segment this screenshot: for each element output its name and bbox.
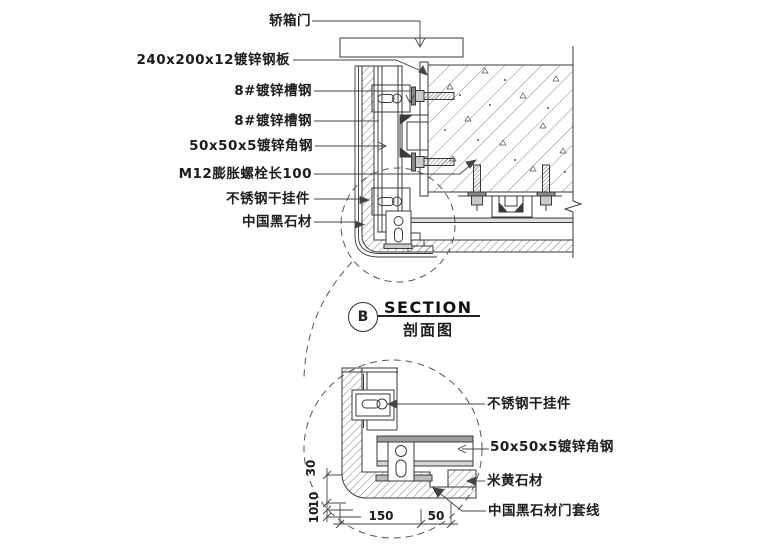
dim-50: 50 — [424, 509, 448, 523]
leader-anchor — [314, 197, 369, 204]
ceiling-stone-strip — [398, 233, 573, 252]
leader-elevator-door — [312, 21, 425, 47]
horizontal-channel-steel — [400, 115, 428, 157]
label-detail-angle-steel: 50x50x5镀锌角钢 — [490, 439, 614, 455]
dim-10-b: 10 — [307, 504, 321, 526]
detail-anchor-bracket-top — [352, 390, 394, 420]
label-doorframe-line: 中国黑石材门套线 — [488, 503, 600, 519]
label-steel-plate: 240x200x12镀锌钢板 — [136, 52, 290, 68]
leader-black-stone — [314, 221, 364, 228]
label-expansion-bolt: M12膨胀螺栓长100 — [179, 166, 312, 182]
cad-drawing-canvas: 轿箱门 240x200x12镀锌钢板 8#镀锌槽钢 8#镀锌槽钢 50x50x5… — [0, 0, 780, 551]
label-beige-stone: 米黄石材 — [487, 473, 543, 489]
steel-plate — [420, 62, 428, 196]
elevator-door-outline — [340, 38, 463, 57]
label-elevator-door: 轿箱门 — [269, 13, 311, 29]
leader-steel-plate — [293, 60, 427, 75]
break-symbol — [565, 197, 581, 212]
dim-30: 30 — [304, 457, 318, 479]
dim-150: 150 — [366, 509, 396, 523]
label-black-stone: 中国黑石材 — [242, 214, 312, 230]
ceiling-angle-rail — [390, 218, 573, 223]
corner-anchor-bracket — [384, 211, 412, 249]
label-channel-steel-2: 8#镀锌槽钢 — [234, 113, 312, 129]
section-title-underline — [378, 315, 480, 317]
soffit-channel-section — [492, 196, 532, 217]
section-detail-linework — [0, 0, 780, 551]
leader-detail-anchor — [388, 401, 485, 408]
label-detail-stainless-anchor: 不锈钢干挂件 — [487, 396, 571, 412]
concrete-wall — [428, 65, 573, 192]
label-angle-steel: 50x50x5镀锌角钢 — [189, 138, 313, 154]
section-bubble: B — [348, 302, 378, 332]
label-channel-steel-1: 8#镀锌槽钢 — [234, 83, 312, 99]
label-stainless-anchor: 不锈钢干挂件 — [226, 191, 310, 207]
leader-angle-steel — [315, 142, 386, 150]
callout-connector-curve — [304, 262, 352, 378]
section-subtitle: 剖面图 — [403, 319, 454, 340]
